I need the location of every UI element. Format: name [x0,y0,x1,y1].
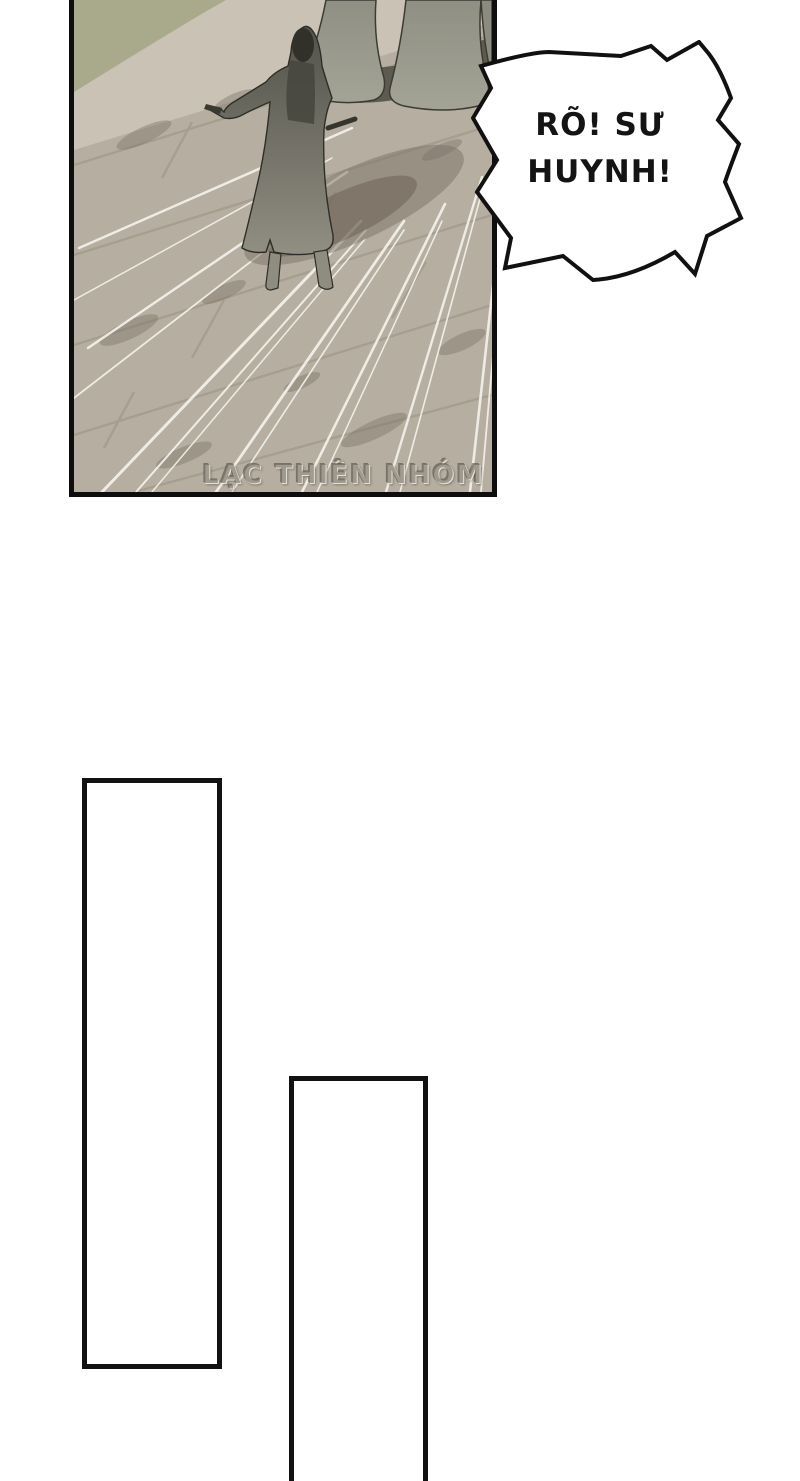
figure-hair [292,28,314,62]
speech-bubble-text: RÕ! SƯ HUYNH! [471,102,729,196]
speech-bubble: RÕ! SƯ HUYNH! [471,40,747,286]
speech-line-2: HUYNH! [471,149,729,196]
empty-panel-top [82,778,222,1369]
empty-panel-bottom [289,1076,428,1481]
artwork-scene [74,0,492,492]
figure-back-hair [286,60,315,124]
speech-line-1: RÕ! SƯ [471,102,729,149]
artwork-panel: LẠC THIÊN NHÓM [69,0,497,497]
comic-page: LẠC THIÊN NHÓM RÕ! SƯ HUYNH! [0,0,800,1481]
panel-watermark: LẠC THIÊN NHÓM [202,460,484,490]
